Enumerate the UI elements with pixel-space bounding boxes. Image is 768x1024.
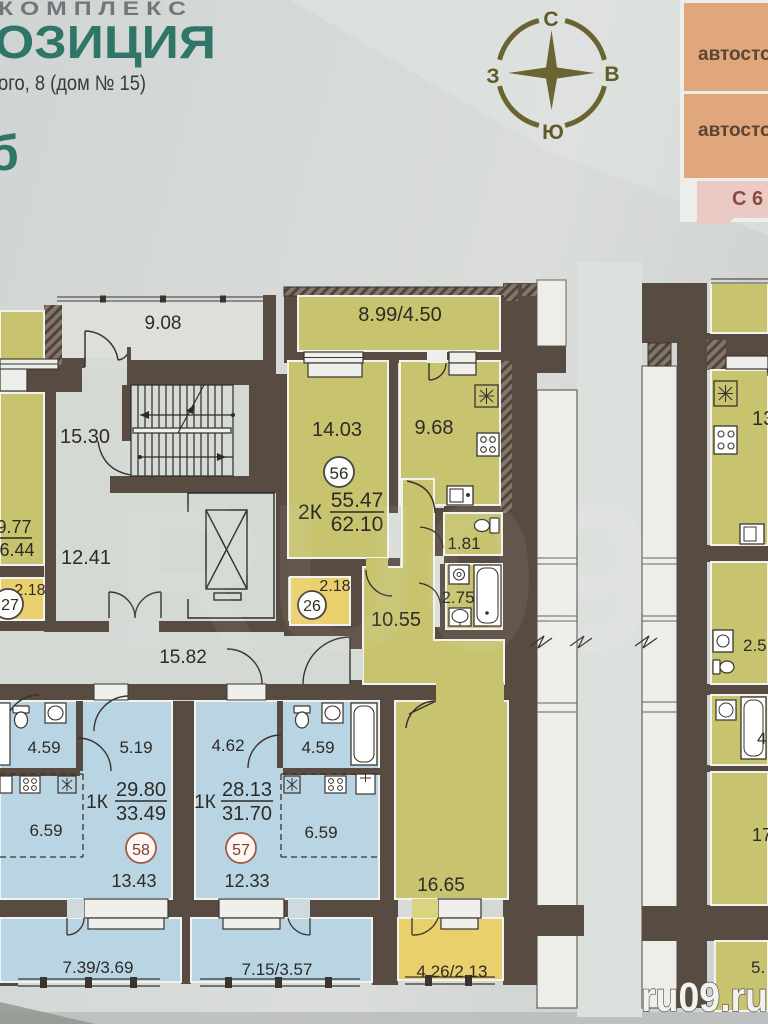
svg-text:27: 27 <box>1 597 19 614</box>
svg-text:31.70: 31.70 <box>222 803 272 825</box>
svg-text:17: 17 <box>752 825 768 845</box>
svg-text:б: б <box>0 125 19 181</box>
svg-text:4.59: 4.59 <box>301 738 334 757</box>
svg-text:58: 58 <box>132 842 150 859</box>
svg-text:7.15/3.57: 7.15/3.57 <box>242 960 313 979</box>
svg-text:ru09.ru: ru09.ru <box>641 974 768 1020</box>
svg-text:ОЗИЦИЯ: ОЗИЦИЯ <box>0 16 216 68</box>
svg-text:ого, 8 (дом № 15): ого, 8 (дом № 15) <box>0 72 146 95</box>
svg-text:RU09: RU09 <box>115 460 655 695</box>
svg-text:12.33: 12.33 <box>224 871 269 891</box>
svg-text:28.13: 28.13 <box>222 779 272 801</box>
svg-text:1К: 1К <box>86 792 108 813</box>
svg-text:16.65: 16.65 <box>417 875 465 896</box>
svg-text:9.68: 9.68 <box>415 417 454 439</box>
svg-text:4.59: 4.59 <box>27 738 60 757</box>
svg-text:15.30: 15.30 <box>60 426 110 448</box>
svg-text:С 6: С 6 <box>732 188 763 210</box>
svg-text:9.08: 9.08 <box>145 313 182 334</box>
svg-text:13: 13 <box>752 408 768 430</box>
svg-text:9.77: 9.77 <box>0 517 32 537</box>
svg-text:13.43: 13.43 <box>111 871 156 891</box>
svg-text:33.49: 33.49 <box>116 803 166 825</box>
svg-text:С: С <box>543 8 558 31</box>
svg-text:4.62: 4.62 <box>211 736 244 755</box>
svg-text:6.44: 6.44 <box>0 540 35 560</box>
svg-text:14.03: 14.03 <box>312 419 362 441</box>
svg-text:5.19: 5.19 <box>119 738 152 757</box>
svg-text:29.80: 29.80 <box>116 779 166 801</box>
svg-text:7.39/3.69: 7.39/3.69 <box>63 958 134 977</box>
svg-text:автостоя: автостоя <box>698 120 768 141</box>
svg-text:4.26/2.13: 4.26/2.13 <box>417 962 488 981</box>
svg-text:автостоя: автостоя <box>698 44 768 65</box>
svg-text:З: З <box>486 65 499 88</box>
svg-text:2.5: 2.5 <box>743 636 767 655</box>
svg-text:Ю: Ю <box>542 121 564 144</box>
svg-text:В: В <box>604 63 619 86</box>
svg-text:8.99/4.50: 8.99/4.50 <box>358 304 441 326</box>
svg-text:4.: 4. <box>757 729 768 748</box>
svg-text:1К: 1К <box>194 792 216 813</box>
svg-text:6.59: 6.59 <box>29 821 62 840</box>
svg-text:57: 57 <box>232 842 250 859</box>
svg-text:6.59: 6.59 <box>304 823 337 842</box>
svg-text:12.41: 12.41 <box>61 547 111 569</box>
